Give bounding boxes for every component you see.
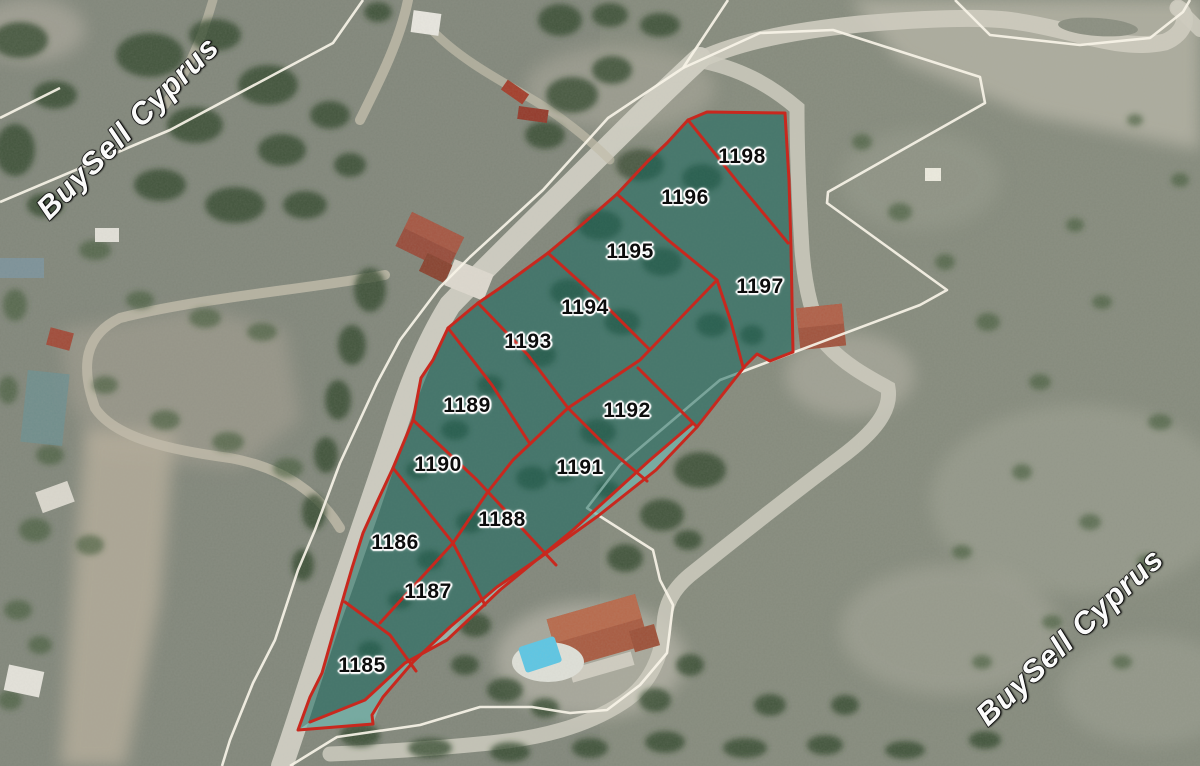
parcel-label-1195: 1195 bbox=[606, 240, 654, 264]
satellite-basemap bbox=[0, 0, 1200, 766]
parcel-label-1186: 1186 bbox=[371, 531, 419, 555]
parcel-label-1197: 1197 bbox=[736, 275, 784, 299]
parcel-label-1194: 1194 bbox=[561, 296, 609, 320]
parcel-label-1191: 1191 bbox=[556, 456, 604, 480]
satellite-map: 1185118611871188118911901191119211931194… bbox=[0, 0, 1200, 766]
parcel-label-1192: 1192 bbox=[603, 399, 651, 423]
parcel-label-1187: 1187 bbox=[404, 580, 452, 604]
parcel-label-1189: 1189 bbox=[443, 394, 491, 418]
parcel-label-1198: 1198 bbox=[718, 145, 766, 169]
parcel-label-1185: 1185 bbox=[338, 654, 386, 678]
parcel-label-1190: 1190 bbox=[414, 453, 462, 477]
parcel-label-1193: 1193 bbox=[504, 330, 552, 354]
parcel-label-1196: 1196 bbox=[661, 186, 709, 210]
parcel-label-1188: 1188 bbox=[478, 508, 526, 532]
